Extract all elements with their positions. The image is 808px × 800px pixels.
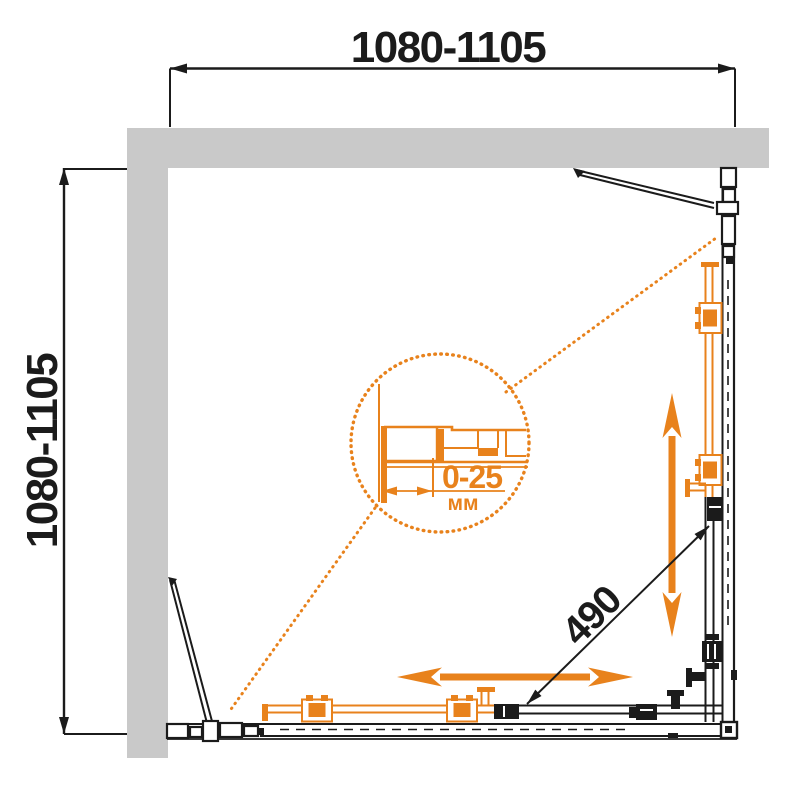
adjust-range-label: 0-25	[442, 459, 502, 495]
bottom-door-handle	[477, 687, 495, 706]
dim-arrow-left-icon	[170, 64, 187, 74]
right-lower-roller	[702, 634, 723, 669]
top-door-panel-open	[573, 168, 714, 208]
right-hinge-block	[717, 202, 738, 214]
dim-arrow-up-icon	[59, 168, 69, 185]
adjust-arrow-right-icon	[417, 487, 432, 496]
right-roller-bracket-lower	[695, 455, 722, 485]
top-dimension-label: 1080-1105	[351, 23, 547, 72]
right-door-edge-roller	[707, 497, 723, 521]
dim-arrow-down-icon	[59, 717, 69, 734]
bottom-hinge-block	[203, 721, 218, 741]
right-panel-assembly	[685, 168, 738, 738]
bottom-panel-assembly	[167, 687, 737, 741]
right-roller-bracket-upper	[695, 303, 722, 333]
left-dimension-label: 1080-1105	[18, 353, 67, 549]
left-door-panel-open	[168, 577, 213, 727]
entry-dimension-label: 490	[554, 578, 630, 654]
horizontal-adjust-arrow-icon	[397, 668, 633, 687]
bottom-roller-bracket-left	[302, 695, 332, 722]
dim-arrow-right-icon	[718, 64, 735, 74]
corner-post	[721, 722, 737, 738]
detail-circle: 0-25 мм	[351, 354, 529, 532]
shower-enclosure-plan-page: 1080-1105 1080-1105 0-25 мм	[0, 0, 808, 800]
top-dimension: 1080-1105	[170, 23, 735, 127]
bottom-door-edge-roller	[494, 704, 519, 719]
adjust-unit-label: мм	[447, 492, 478, 515]
detail-leader-bottom	[229, 508, 375, 712]
enclosure-plan-drawing: 1080-1105 1080-1105 0-25 мм	[0, 0, 808, 800]
bottom-roller-bracket-right	[447, 695, 477, 722]
detail-leader-top	[506, 238, 716, 392]
right-knob	[686, 668, 706, 687]
vertical-adjust-arrow-icon	[663, 393, 682, 637]
left-dimension: 1080-1105	[18, 168, 127, 734]
